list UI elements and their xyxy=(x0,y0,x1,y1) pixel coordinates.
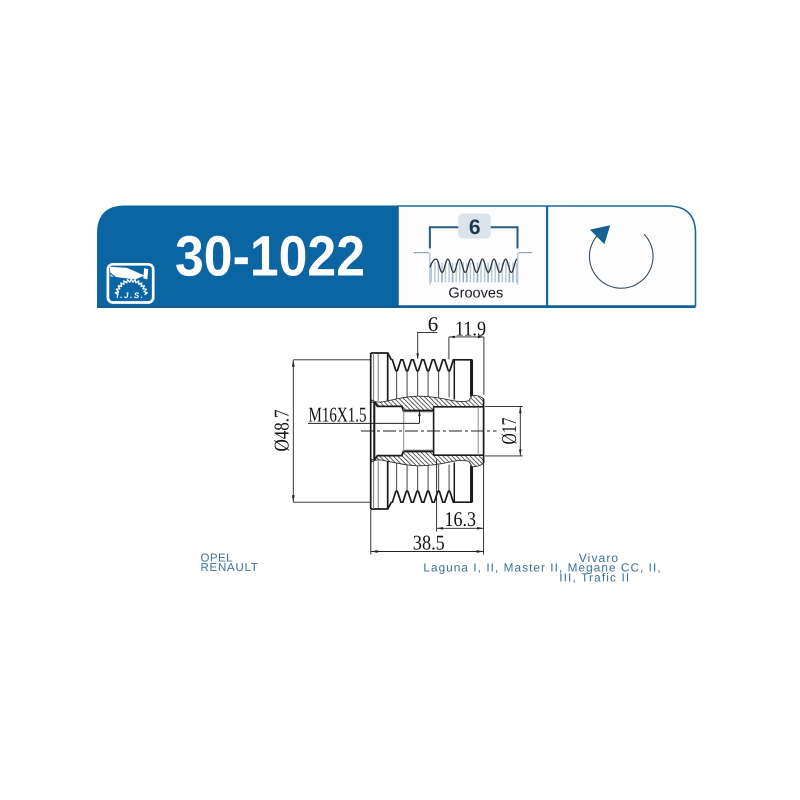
svg-text:Ø17: Ø17 xyxy=(497,418,521,445)
svg-text:38.5: 38.5 xyxy=(413,530,445,554)
svg-text:6: 6 xyxy=(428,312,439,336)
svg-text:6: 6 xyxy=(469,216,481,239)
svg-text:I.J.S.: I.J.S. xyxy=(116,291,144,300)
svg-text:Grooves: Grooves xyxy=(448,285,503,301)
svg-text:Ø48.7: Ø48.7 xyxy=(270,410,294,452)
svg-text:RENAULT: RENAULT xyxy=(201,562,259,574)
svg-text:M16X1.5: M16X1.5 xyxy=(309,403,367,427)
svg-text:11.9: 11.9 xyxy=(455,316,486,340)
svg-text:III, Trafic II: III, Trafic II xyxy=(559,570,630,584)
svg-text:16.3: 16.3 xyxy=(445,507,477,531)
svg-text:30-1022: 30-1022 xyxy=(175,225,365,289)
